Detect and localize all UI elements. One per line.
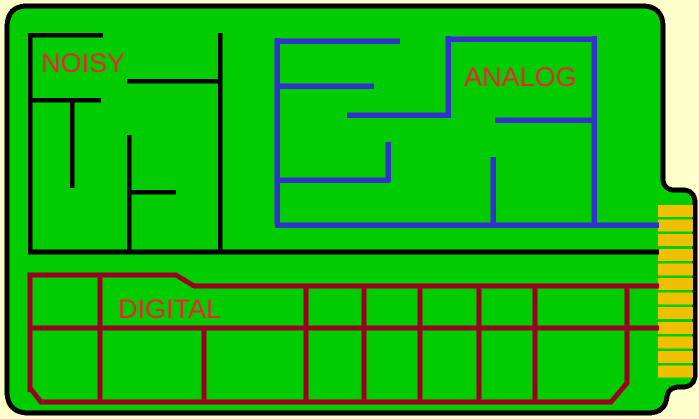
connector-finger <box>658 278 693 290</box>
noisy-region-label: NOISY <box>41 48 125 78</box>
pcb-diagram: NOISY ANALOG DIGITAL <box>0 0 699 419</box>
connector-finger <box>658 307 693 319</box>
connector-finger <box>658 293 693 305</box>
connector-finger <box>658 234 693 246</box>
connector-finger <box>658 220 693 232</box>
analog-region-label: ANALOG <box>464 62 577 92</box>
connector-finger <box>658 263 693 275</box>
digital-region-label: DIGITAL <box>118 294 221 324</box>
connector-finger <box>658 336 693 348</box>
connector-finger <box>658 205 693 217</box>
pcb-diagram-canvas: NOISY ANALOG DIGITAL <box>0 0 699 419</box>
connector-finger <box>658 322 693 334</box>
connector-finger <box>658 351 693 363</box>
connector-finger <box>658 366 693 378</box>
connector-finger <box>658 249 693 261</box>
